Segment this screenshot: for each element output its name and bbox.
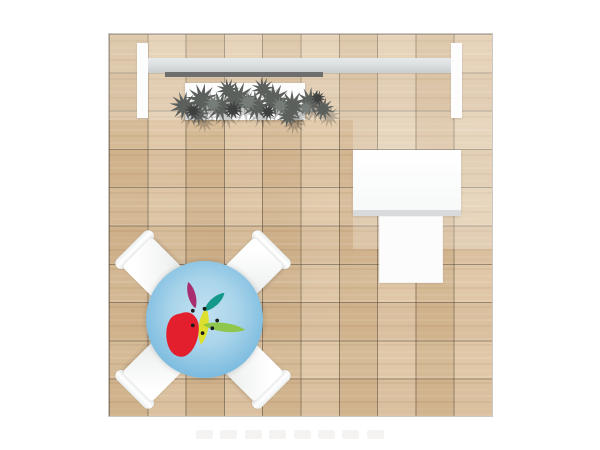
watermark-thumb <box>220 430 237 439</box>
booth-floorplan <box>0 0 600 450</box>
logo-leaf-magenta <box>185 281 199 309</box>
round-meeting-table <box>146 261 263 378</box>
reception-counter <box>353 150 461 216</box>
logo-leaf-green <box>202 320 246 334</box>
logo-icon <box>146 261 263 378</box>
wall-endcap-right <box>451 43 462 118</box>
plant-icon <box>168 76 336 134</box>
logo-fruit-red <box>166 312 198 356</box>
wall-endcap-left <box>137 43 148 118</box>
wall-beam <box>148 58 451 73</box>
watermark-thumb <box>294 430 311 439</box>
watermark-thumb <box>269 430 286 439</box>
watermark-thumb <box>196 430 213 439</box>
watermark-thumb <box>342 430 359 439</box>
watermark-thumb <box>245 430 262 439</box>
watermark-thumb <box>318 430 335 439</box>
watermark-thumb <box>367 430 384 439</box>
counter-stool <box>379 216 443 283</box>
